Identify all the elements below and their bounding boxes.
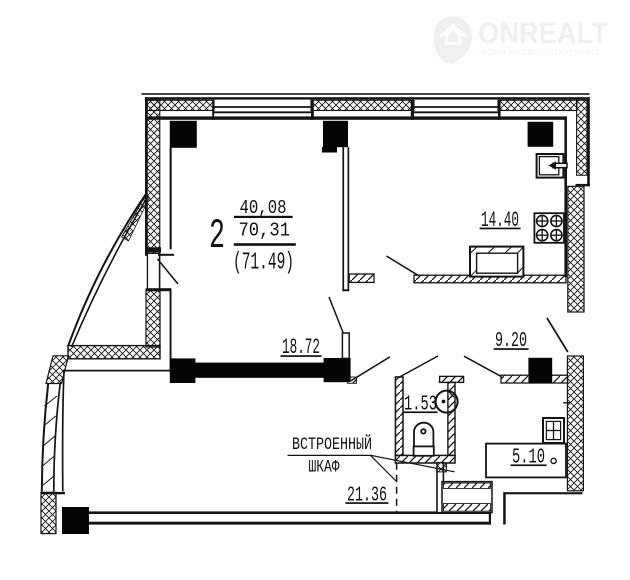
svg-text:70,31: 70,31 [239, 220, 291, 242]
svg-text:НЕДВИЖИМОСТЬ БЕЗ ПОСРЕДНИКОВ: НЕДВИЖИМОСТЬ БЕЗ ПОСРЕДНИКОВ [479, 47, 601, 57]
svg-text:ONREALT: ONREALT [478, 17, 608, 50]
svg-text:ШКАФ: ШКАФ [309, 458, 340, 478]
svg-text:40,08: 40,08 [240, 197, 287, 219]
svg-text:2: 2 [209, 212, 225, 260]
svg-text:21.36: 21.36 [347, 485, 387, 508]
svg-text:(71.49): (71.49) [233, 250, 294, 277]
svg-text:ВСТРОЕННЫЙ: ВСТРОЕННЫЙ [292, 433, 372, 455]
